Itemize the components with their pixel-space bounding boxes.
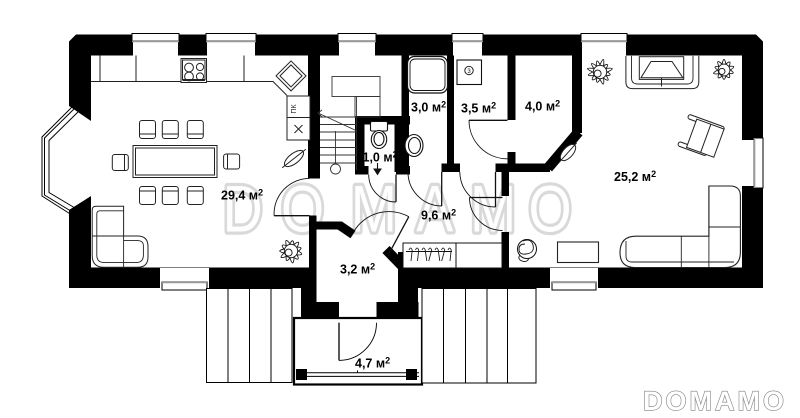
svg-text:9,6 м2: 9,6 м2: [421, 208, 456, 223]
svg-text:DOMAMO: DOMAMO: [643, 386, 787, 416]
svg-text:29,4 м2: 29,4 м2: [221, 188, 263, 203]
svg-text:M: M: [351, 172, 397, 246]
svg-text:4,7 м2: 4,7 м2: [355, 356, 390, 371]
svg-text:O: O: [529, 172, 572, 246]
svg-text:D: D: [223, 172, 263, 246]
svg-text:O: O: [281, 172, 324, 246]
svg-text:25,2 м2: 25,2 м2: [614, 169, 656, 184]
svg-text:1,0 м2: 1,0 м2: [363, 150, 398, 165]
svg-text:3,2 м2: 3,2 м2: [340, 262, 375, 277]
svg-text:3,5 м2: 3,5 м2: [461, 101, 496, 116]
svg-text:4,0 м2: 4,0 м2: [525, 99, 560, 114]
svg-text:3,0 м2: 3,0 м2: [411, 100, 446, 115]
svg-text:M: M: [470, 172, 516, 246]
svg-text:ПК: ПК: [291, 104, 298, 114]
